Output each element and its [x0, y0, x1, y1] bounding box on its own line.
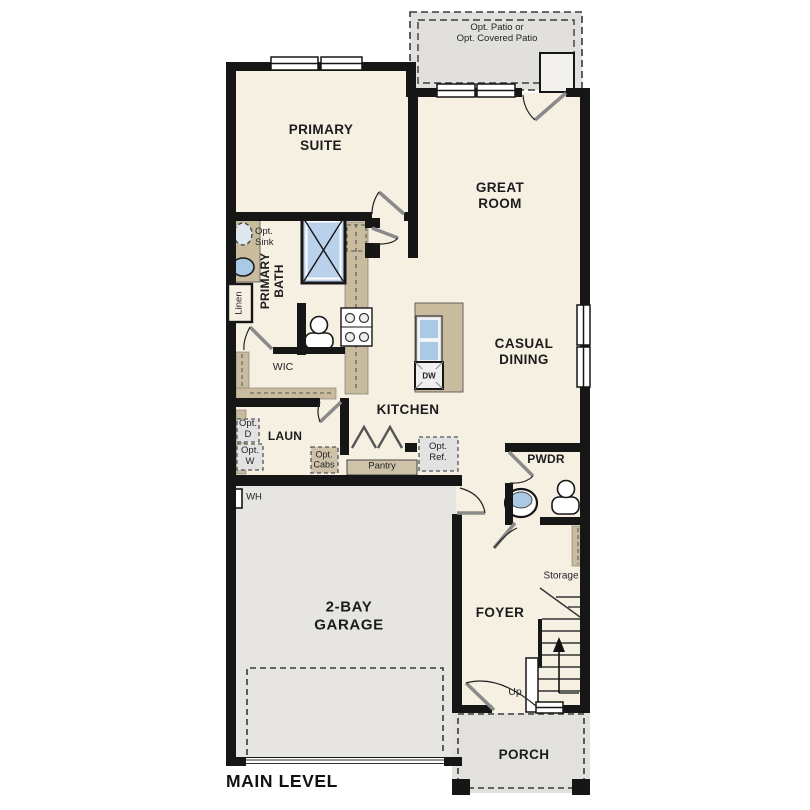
opt-fridge-box	[419, 437, 458, 471]
floor-plan: Opt. Patio or Opt. Covered Patio PRIMARY…	[0, 0, 810, 810]
porch-post-right	[572, 779, 590, 795]
window	[271, 57, 318, 70]
shower-icon	[302, 217, 345, 283]
porch-post-left	[452, 779, 470, 795]
optional-sink-icon	[234, 223, 252, 245]
pantry-shelf	[347, 460, 417, 475]
window	[577, 347, 590, 387]
window	[477, 84, 515, 97]
page-title: MAIN LEVEL	[226, 771, 338, 792]
window-sidelight	[536, 702, 563, 713]
optional-patio-area	[410, 12, 582, 92]
opt-dryer-box	[237, 419, 259, 442]
island-sink-icon	[416, 316, 442, 363]
opt-cabs-box	[311, 447, 338, 473]
window	[321, 57, 362, 70]
window	[577, 305, 590, 345]
stove-icon	[341, 308, 372, 346]
dishwasher-icon	[415, 362, 443, 389]
floor-plan-drawing	[0, 0, 810, 810]
window	[437, 84, 475, 97]
patio-landing	[540, 53, 574, 92]
garage-floor	[236, 480, 456, 761]
porch-floor	[452, 713, 590, 793]
opt-washer-box	[237, 444, 263, 470]
linen-closet	[228, 284, 252, 322]
garage-door	[246, 758, 444, 766]
